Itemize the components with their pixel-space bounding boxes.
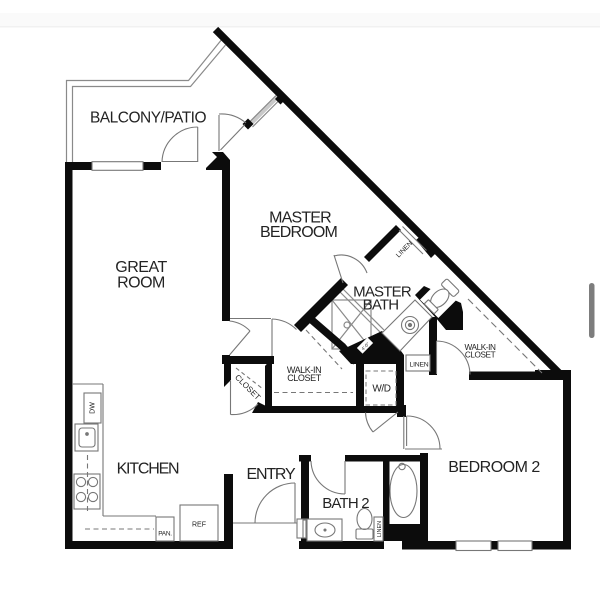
svg-text:PAN.: PAN. (158, 531, 172, 538)
svg-text:LINEN: LINEN (409, 362, 428, 369)
svg-text:ROOM: ROOM (117, 274, 165, 291)
svg-text:REF: REF (192, 522, 206, 529)
svg-text:ENTRY: ENTRY (247, 466, 296, 483)
svg-text:W/D: W/D (372, 384, 390, 395)
svg-text:CLOSET: CLOSET (287, 373, 322, 383)
svg-text:KITCHEN: KITCHEN (117, 461, 179, 478)
svg-text:BEDROOM 2: BEDROOM 2 (448, 459, 540, 476)
svg-text:CLOSET: CLOSET (465, 351, 496, 360)
svg-text:LINEN: LINEN (377, 521, 383, 537)
svg-text:BATH: BATH (363, 297, 399, 314)
svg-text:GREAT: GREAT (115, 259, 167, 276)
svg-text:LINEN: LINEN (395, 240, 414, 259)
svg-text:BATH 2: BATH 2 (322, 495, 369, 512)
svg-text:DW: DW (90, 402, 97, 414)
svg-text:BALCONY/PATIO: BALCONY/PATIO (90, 110, 207, 127)
svg-text:BEDROOM: BEDROOM (260, 224, 338, 241)
